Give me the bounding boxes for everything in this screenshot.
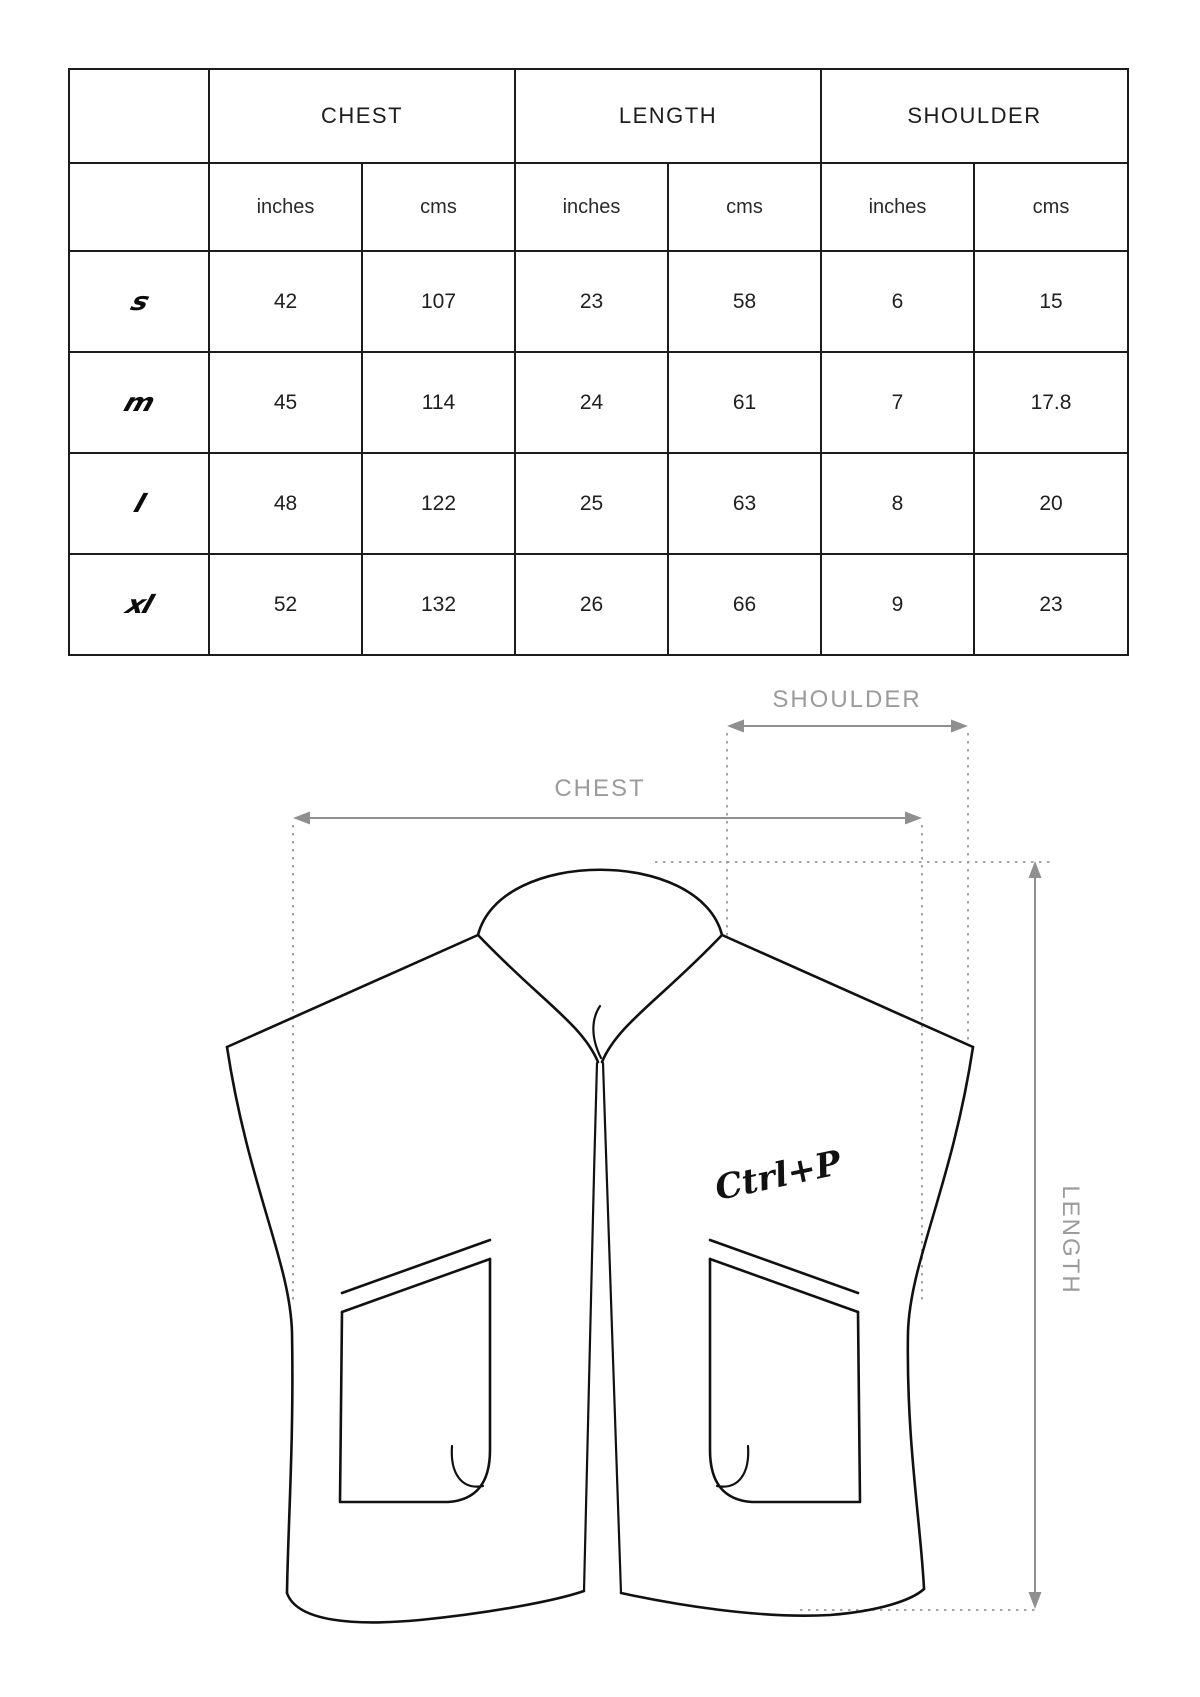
value-cell: 42 [209, 251, 362, 352]
length-arrowhead-bottom [1029, 1592, 1042, 1609]
placket-right-edge [603, 1063, 621, 1593]
size-glyph-s: s [127, 287, 151, 317]
size-label-cell: l [69, 453, 209, 554]
left-pocket-body [340, 1259, 490, 1502]
value-cell: 48 [209, 453, 362, 554]
vest-outline [227, 870, 973, 1623]
length-arrowhead-top [1029, 861, 1042, 878]
value-cell: 20 [974, 453, 1128, 554]
value-cell: 8 [821, 453, 974, 554]
left-pocket [340, 1240, 490, 1502]
value-cell: 63 [668, 453, 821, 554]
size-chart-page: CHEST LENGTH SHOULDER inches cms inches … [0, 0, 1200, 1697]
hem-right [621, 1589, 924, 1616]
table-row-m: m 45 114 24 61 7 17.8 [69, 352, 1128, 453]
size-label-cell: m [69, 352, 209, 453]
shoulder-arrowhead-left [727, 720, 744, 733]
value-cell: 23 [974, 554, 1128, 655]
shoulder-dimension-label: SHOULDER [772, 686, 921, 713]
size-glyph-l: l [130, 489, 147, 519]
unit-header: inches [821, 163, 974, 251]
size-glyph-xl: xl [122, 590, 155, 620]
size-label-cell: xl [69, 554, 209, 655]
value-cell: 7 [821, 352, 974, 453]
value-cell: 6 [821, 251, 974, 352]
value-cell: 9 [821, 554, 974, 655]
length-dimension-label: LENGTH [1057, 1185, 1084, 1294]
shoulder-arrowhead-right [951, 720, 968, 733]
right-pocket-corner-curl [717, 1446, 748, 1487]
value-cell: 23 [515, 251, 668, 352]
unit-header: cms [974, 163, 1128, 251]
value-cell: 15 [974, 251, 1128, 352]
value-cell: 24 [515, 352, 668, 453]
size-glyph-m: m [121, 388, 158, 418]
table-row-s: s 42 107 23 58 6 15 [69, 251, 1128, 352]
unit-header: inches [515, 163, 668, 251]
right-pocket [710, 1240, 860, 1502]
brand-logo-script: Ctrl+P [712, 1143, 847, 1209]
dotted-guide-lines [293, 733, 1052, 1610]
value-cell: 114 [362, 352, 515, 453]
value-cell: 52 [209, 554, 362, 655]
value-cell: 45 [209, 352, 362, 453]
value-cell: 122 [362, 453, 515, 554]
dimension-arrows [293, 720, 1042, 1610]
value-cell: 17.8 [974, 352, 1128, 453]
right-pocket-body [710, 1259, 860, 1502]
shoulder-seam-right [722, 935, 973, 1047]
right-side-seam [908, 1047, 973, 1589]
value-cell: 25 [515, 453, 668, 554]
unit-corner-cell [69, 163, 209, 251]
shoulder-seam-left [227, 935, 478, 1047]
collar-front-curl [593, 1006, 601, 1058]
group-header-chest: CHEST [209, 69, 515, 163]
collar-inner-right [602, 935, 722, 1062]
unit-header: inches [209, 163, 362, 251]
placket-left-edge [584, 1063, 597, 1591]
corner-cell [69, 69, 209, 163]
unit-header: cms [668, 163, 821, 251]
group-header-length: LENGTH [515, 69, 821, 163]
value-cell: 26 [515, 554, 668, 655]
table-unit-header-row: inches cms inches cms inches cms [69, 163, 1128, 251]
hem-left [287, 1591, 584, 1622]
chest-arrowhead-left [293, 812, 310, 825]
table-group-header-row: CHEST LENGTH SHOULDER [69, 69, 1128, 163]
size-label-cell: s [69, 251, 209, 352]
vest-measurement-diagram: SHOULDER CHEST LENGTH [0, 645, 1200, 1697]
unit-header: cms [362, 163, 515, 251]
value-cell: 107 [362, 251, 515, 352]
chest-arrowhead-right [905, 812, 922, 825]
collar-inner-left [478, 935, 598, 1062]
size-table: CHEST LENGTH SHOULDER inches cms inches … [68, 68, 1129, 656]
value-cell: 61 [668, 352, 821, 453]
chest-dimension-label: CHEST [554, 775, 645, 802]
left-pocket-corner-curl [452, 1446, 483, 1487]
collar-outline [478, 870, 722, 935]
dimension-labels: SHOULDER CHEST LENGTH [554, 686, 1084, 1295]
group-header-shoulder: SHOULDER [821, 69, 1128, 163]
value-cell: 58 [668, 251, 821, 352]
table-row-l: l 48 122 25 63 8 20 [69, 453, 1128, 554]
value-cell: 66 [668, 554, 821, 655]
value-cell: 132 [362, 554, 515, 655]
table-row-xl: xl 52 132 26 66 9 23 [69, 554, 1128, 655]
left-side-seam [227, 1047, 292, 1593]
